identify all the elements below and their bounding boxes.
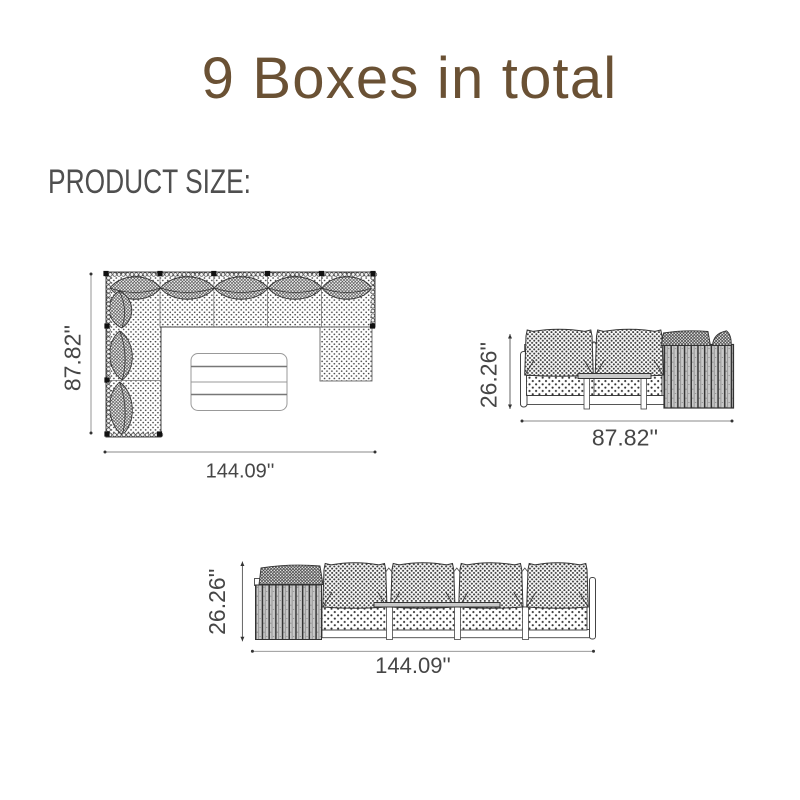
svg-text:87.82'': 87.82'' bbox=[592, 425, 658, 451]
svg-text:PRODUCT SIZE:: PRODUCT SIZE: bbox=[48, 163, 251, 201]
svg-text:144.09'': 144.09'' bbox=[206, 461, 275, 483]
svg-text:87.82'': 87.82'' bbox=[60, 325, 86, 391]
svg-text:26.26'': 26.26'' bbox=[204, 569, 230, 635]
svg-text:144.09'': 144.09'' bbox=[375, 653, 451, 678]
svg-text:26.26'': 26.26'' bbox=[476, 342, 502, 408]
svg-text:9 Boxes in total: 9 Boxes in total bbox=[202, 46, 618, 111]
